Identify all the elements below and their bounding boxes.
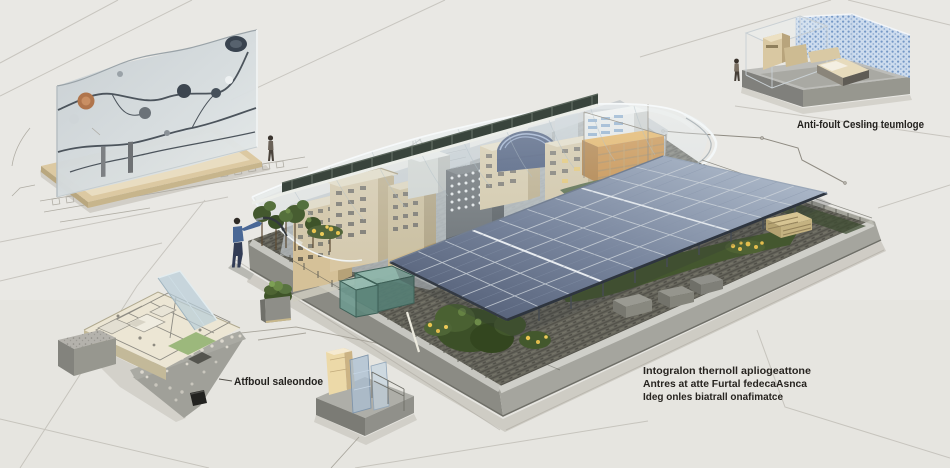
svg-text:Atfboul saleondoe: Atfboul saleondoe <box>234 376 323 388</box>
svg-text:Intogralon thernoll apliogeatt: Intogralon thernoll apliogeattone <box>643 365 811 377</box>
svg-text:Ideg onles biatrall onafimatce: Ideg onles biatrall onafimatce <box>643 391 783 403</box>
svg-text:Anti-foult Cesling teumloge: Anti-foult Cesling teumloge <box>797 119 924 131</box>
svg-text:Antres at atte Furtal fedecaAs: Antres at atte Furtal fedecaAsnca <box>643 378 807 390</box>
